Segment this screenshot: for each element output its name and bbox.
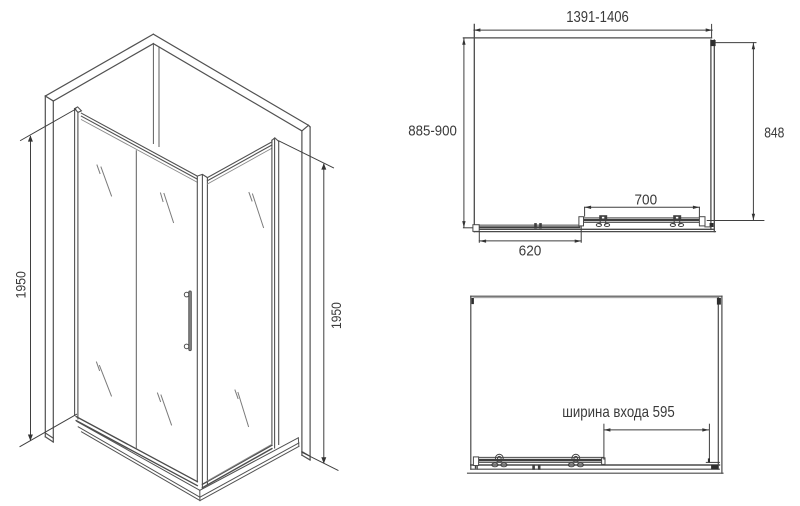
svg-text:1950: 1950 [329, 302, 344, 329]
svg-text:1950: 1950 [13, 271, 28, 298]
svg-text:700: 700 [635, 192, 658, 209]
svg-text:ширина входа 595: ширина входа 595 [562, 404, 675, 421]
svg-text:848: 848 [764, 124, 784, 141]
svg-text:885-900: 885-900 [408, 123, 457, 139]
svg-text:1391-1406: 1391-1406 [566, 9, 629, 26]
svg-text:620: 620 [519, 243, 542, 260]
